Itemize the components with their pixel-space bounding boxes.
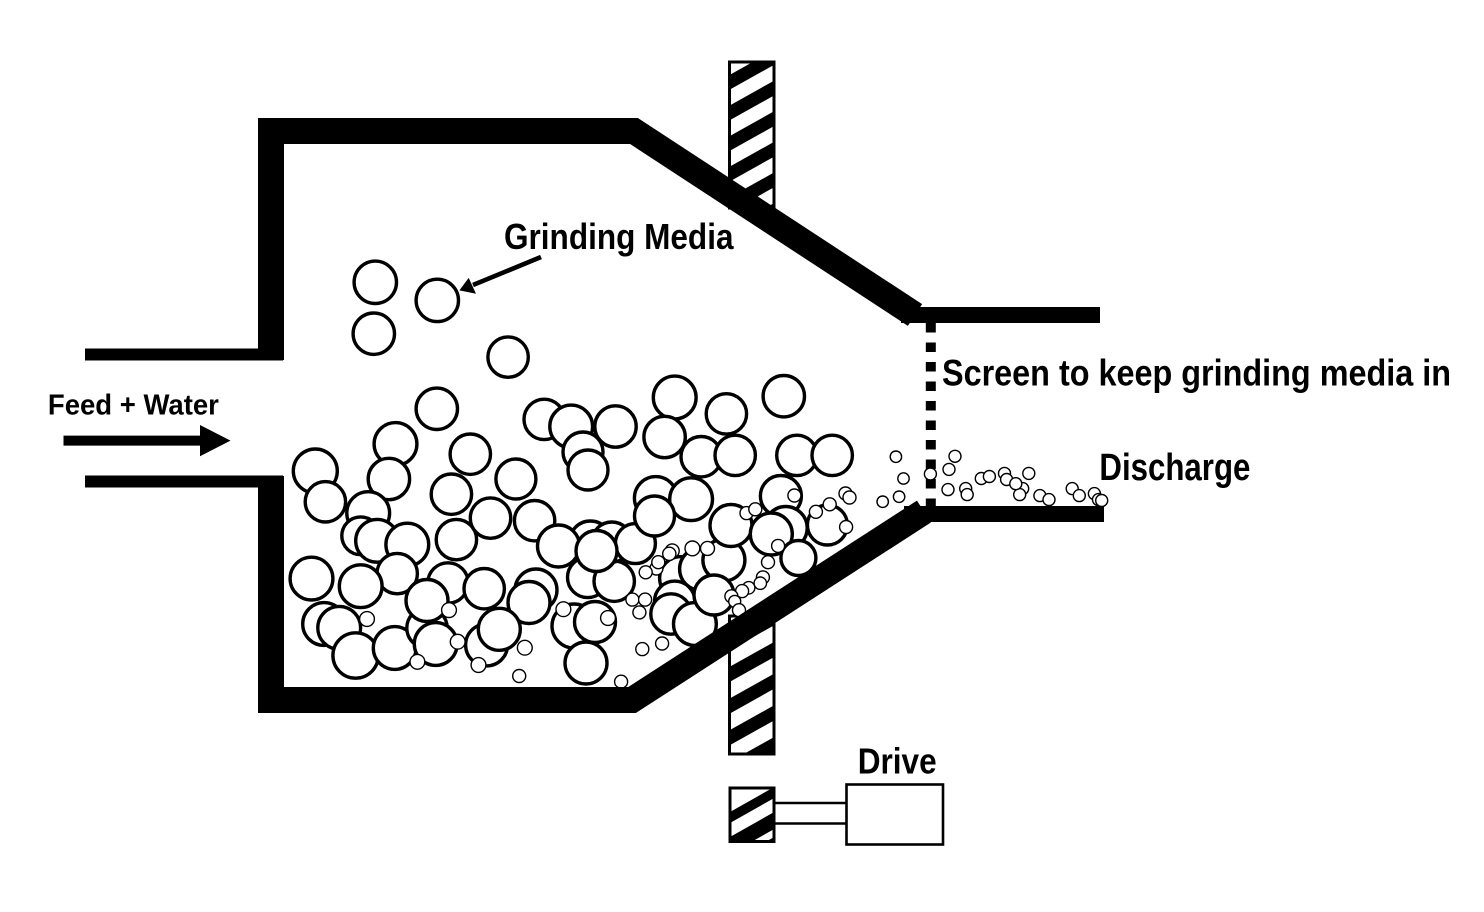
svg-text:Grinding Media: Grinding Media	[504, 216, 734, 257]
svg-text:Discharge: Discharge	[1099, 447, 1250, 489]
svg-text:Screen to keep grinding media: Screen to keep grinding media in	[942, 353, 1451, 394]
svg-text:Drive: Drive	[858, 740, 937, 781]
svg-text:Feed + Water: Feed + Water	[48, 389, 219, 421]
